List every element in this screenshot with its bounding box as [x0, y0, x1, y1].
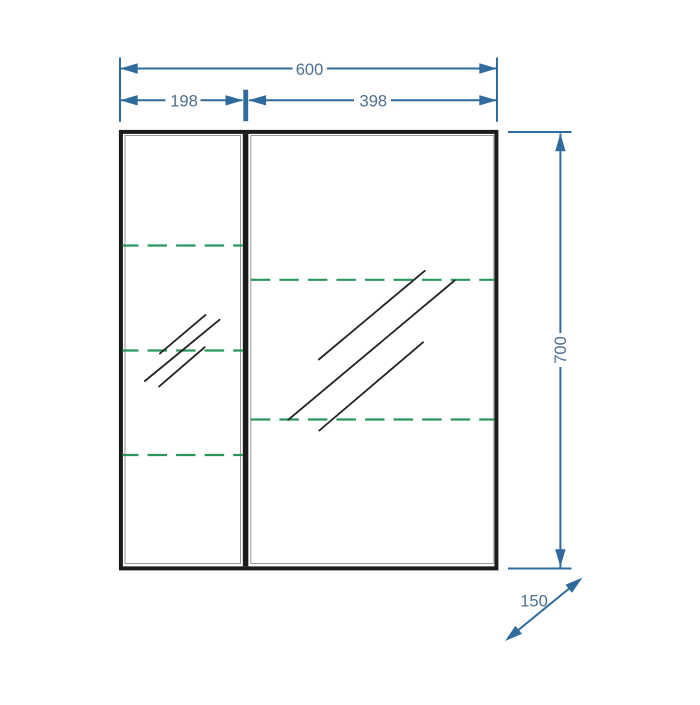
svg-text:600: 600 — [296, 61, 324, 79]
svg-text:398: 398 — [360, 92, 388, 110]
svg-text:198: 198 — [170, 92, 198, 110]
svg-text:150: 150 — [520, 592, 548, 610]
svg-text:700: 700 — [552, 336, 570, 364]
